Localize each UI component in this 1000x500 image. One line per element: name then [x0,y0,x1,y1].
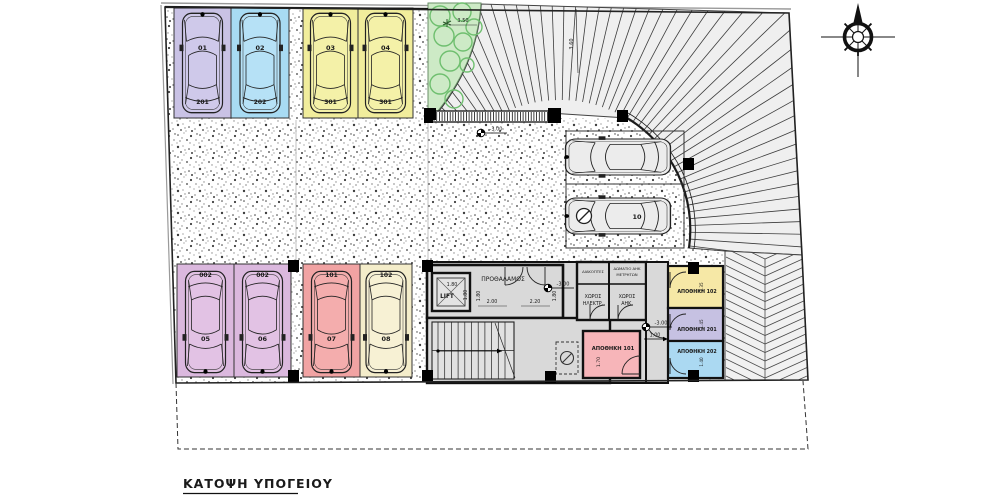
dim: 1.45 [699,319,704,329]
unit-number: 301 [324,99,337,106]
parking-stall-03: 03301 [303,8,358,118]
unit-number: 201 [196,99,209,106]
stall-number: 01 [198,44,208,52]
unit-number: 102 [380,272,393,279]
car [308,12,354,113]
staircase [432,322,515,379]
parking-stall-01: 01201 [174,8,231,118]
car [309,271,355,373]
floor-plan-svg: 0120102202033010430100205002061010710208… [0,0,1000,500]
unit-number: 101 [325,272,338,279]
building-core: ΠΡΟΘΑΛΑΜΟΣLIFT1.801.801.802.002.201.80ΔΙ… [427,262,668,383]
level-text: -3.00 [557,282,570,288]
parking-stall-07: 10107 [303,264,360,377]
basement-floor-plan: 0120102202033010430100205002061010710208… [0,0,1000,500]
unit-number: 002 [256,272,269,279]
utility-rooms: ΔΙΑΚΟΠΤΕΣΔΩΜΑΤΙΟ ΑΗΚΜΕΤΡΗΤΩΝΧΩΡΟΣΗΛΕΚΤΡ.… [577,262,646,320]
north-compass-icon [821,3,895,77]
accessible-parking-symbol [577,209,592,224]
dim: 1.00 [650,333,661,339]
unit-number: 202 [254,99,267,106]
stall-number: 06 [258,335,268,343]
storage-label: ΑΠΟΘΗΚΗ 202 [677,349,716,355]
breaker-room-label: ΔΙΑΚΟΠΤΕΣ [582,269,604,274]
lift-label: LIFT [440,294,454,300]
level-text: -3.00 [655,321,668,327]
column [425,108,436,120]
parking-stall-08: 10208 [360,264,412,377]
dim: 3.50 [457,18,468,24]
storage-column: ΑΠΟΘΗΚΗ 1021.35ΑΠΟΘΗΚΗ 2011.45ΑΠΟΘΗΚΗ 20… [668,266,723,378]
stall-number: 02 [255,44,264,52]
dim-lift-height: 1.80 [463,290,469,301]
parking-stall-02: 02202 [231,8,289,118]
parking-stall-04: 04301 [358,8,413,118]
dim: 2.20 [530,299,541,305]
column [617,110,628,122]
car [183,271,229,373]
stall-number: 07 [327,335,336,343]
car [240,271,286,373]
dim: 1.80 [476,291,482,302]
dim: 2.00 [487,299,498,305]
unit-number: 002 [199,272,212,279]
property-line-dashed [176,381,808,449]
stall-number: 03 [326,44,335,52]
storage-label: ΑΠΟΘΗΚΗ 201 [677,327,716,333]
dim: 1.70 [596,357,602,367]
stall-number: 04 [381,44,391,52]
drawing-title: ΚΑΤΟΨΗ ΥΠΟΓΕΙΟΥ [183,476,333,491]
column [688,262,699,274]
storage-label: ΑΠΟΘΗΚΗ 101 [592,346,635,352]
level-text: -3.00 [490,127,503,133]
car [363,12,409,113]
column [288,260,299,272]
car [180,12,226,113]
car [237,12,283,113]
stall-number: 08 [381,335,391,343]
parking-stall-06: 00206 [234,264,291,377]
dim: 3.60 [569,38,575,49]
dim: 1.40 [699,357,704,367]
dim: 1.80 [552,291,558,302]
lift: LIFT1.801.80 [432,273,470,311]
stall-number: 05 [201,335,211,343]
dim-lift-width: 1.80 [447,282,458,288]
meter-room-label: ΔΩΜΑΤΙΟ ΑΗΚ [614,266,641,271]
column [422,260,433,272]
parking-stall-05: 00205 [177,264,234,377]
storage-label: ΑΠΟΘΗΚΗ 102 [677,289,716,295]
column [683,158,694,170]
meter-room-label: ΜΕΤΡΗΤΩΝ [616,272,637,277]
stall-number: 10 [632,213,642,221]
column [288,370,299,382]
car [564,136,670,177]
column [422,370,433,382]
dim: 1.35 [699,282,704,292]
storage-101: ΑΠΟΘΗΚΗ 1011.70 [583,331,640,378]
ahk-room-label: ΧΩΡΟΣ [619,294,636,300]
unit-number: 301 [379,99,392,106]
chevron-hatch-area [725,240,808,395]
car [363,271,409,373]
column [548,108,559,120]
electrical-room-label: ΧΩΡΟΣ [585,294,602,300]
